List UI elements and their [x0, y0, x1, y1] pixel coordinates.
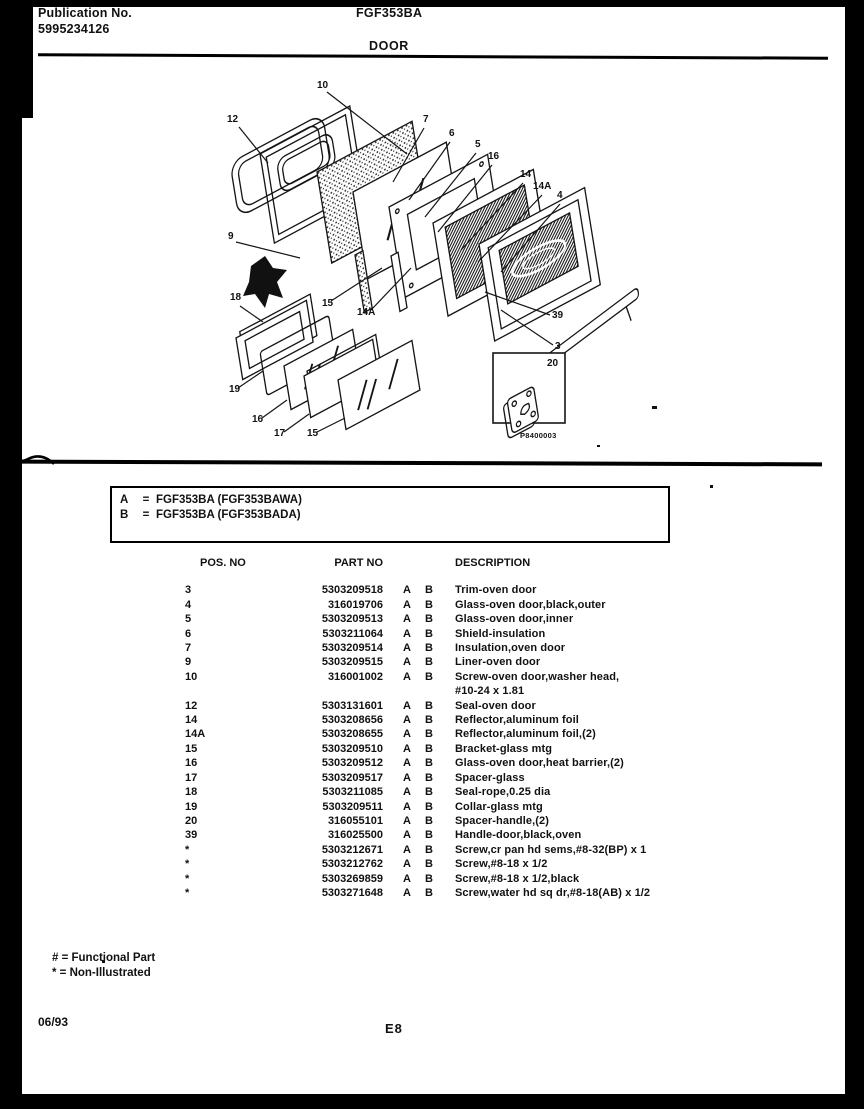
pos-no: 17 [185, 771, 263, 785]
equals-sign: = [136, 493, 156, 508]
description: Trim-oven door [455, 583, 685, 597]
callout-leader-line [262, 400, 287, 418]
scan-edge-right [845, 0, 864, 1109]
footnote-non-illustrated: * = Non-Illustrated [52, 966, 155, 981]
callout-leader-line [236, 242, 300, 258]
flag-a: A [403, 886, 425, 900]
part-no: 5303209510 [263, 742, 383, 756]
callout-label: 10 [317, 80, 329, 91]
publication-block: Publication No. 5995234126 [38, 5, 132, 37]
flag-a: A [403, 756, 425, 770]
model-flags: AB [383, 627, 455, 641]
model-flags: AB [383, 785, 455, 799]
table-row: 15 5303209510 AB Bracket-glass mtg [185, 742, 685, 756]
table-row: * 5303212671 AB Screw,cr pan hd sems,#8-… [185, 843, 685, 857]
model-flags: AB [383, 655, 455, 669]
description: Glass-oven door,inner [455, 612, 685, 626]
description: Handle-door,black,oven [455, 828, 685, 842]
description-line1: Shield-insulation [455, 627, 685, 641]
callout-label: 17 [274, 428, 286, 439]
callout-label: 15 [322, 298, 334, 309]
callout-leader-line [284, 414, 309, 432]
callout-label: 4 [557, 190, 563, 201]
scan-edge-left-nub [0, 0, 33, 118]
footer-page-code: E8 [385, 1021, 403, 1036]
description: Reflector,aluminum foil,(2) [455, 727, 685, 741]
pos-no: 18 [185, 785, 263, 799]
table-row: 14 5303208656 AB Reflector,aluminum foil [185, 713, 685, 727]
table-row: 39 316025500 AB Handle-door,black,oven [185, 828, 685, 842]
model-flags: AB [383, 857, 455, 871]
model-flags: AB [383, 843, 455, 857]
publication-label: Publication No. [38, 5, 132, 21]
description-line1: Screw-oven door,washer head, [455, 670, 685, 684]
description-line1: Bracket-glass mtg [455, 742, 685, 756]
description: Insulation,oven door [455, 641, 685, 655]
callout-label: 5 [475, 139, 481, 150]
pos-no: 14A [185, 727, 263, 741]
pos-no: 20 [185, 814, 263, 828]
model-flags: AB [383, 583, 455, 597]
flag-a: A [403, 641, 425, 655]
header-spacer [383, 556, 455, 570]
flag-a: A [403, 670, 425, 684]
pos-no: * [185, 843, 263, 857]
model-key-row: A=FGF353BA (FGF353BAWA) [120, 493, 668, 508]
pos-no: 6 [185, 627, 263, 641]
callout-label: 3 [555, 341, 561, 352]
flag-a: A [403, 583, 425, 597]
model-flags: AB [383, 612, 455, 626]
scan-speck [710, 485, 713, 488]
part-no: 5303209514 [263, 641, 383, 655]
description-line1: Reflector,aluminum foil [455, 713, 685, 727]
flag-b: B [425, 583, 447, 597]
flag-b: B [425, 627, 447, 641]
exploded-diagram: P8400003 1012765161414A49181514A19161715… [55, 70, 825, 465]
flag-b: B [425, 756, 447, 770]
description-line1: Reflector,aluminum foil,(2) [455, 727, 685, 741]
table-row: 16 5303209512 AB Glass-oven door,heat ba… [185, 756, 685, 770]
header-part-no: PART NO [263, 556, 383, 570]
callout-leader-line [331, 268, 382, 301]
flag-b: B [425, 872, 447, 886]
description: Spacer-glass [455, 771, 685, 785]
table-row: 7 5303209514 AB Insulation,oven door [185, 641, 685, 655]
part-no: 5303211085 [263, 785, 383, 799]
description: Bracket-glass mtg [455, 742, 685, 756]
part-no: 5303209517 [263, 771, 383, 785]
description-line1: Handle-door,black,oven [455, 828, 685, 842]
part-no: 5303209512 [263, 756, 383, 770]
flag-a: A [403, 655, 425, 669]
flag-a: A [403, 843, 425, 857]
parts-table: POS. NO PART NO DESCRIPTION 3 5303209518… [185, 556, 685, 900]
document-page: Publication No. 5995234126 FGF353BA DOOR [0, 0, 864, 1109]
flag-b: B [425, 598, 447, 612]
description-line1: Spacer-glass [455, 771, 685, 785]
parts-rows: 3 5303209518 AB Trim-oven door 4 3160197… [185, 583, 685, 900]
part-no: 5303212762 [263, 857, 383, 871]
flag-a: A [403, 699, 425, 713]
callout-leader-line [240, 306, 263, 322]
pos-no: 39 [185, 828, 263, 842]
part-no: 316019706 [263, 598, 383, 612]
model-number: FGF353BA [356, 6, 422, 20]
description-line1: Glass-oven door,black,outer [455, 598, 685, 612]
callout-label: 19 [229, 384, 241, 395]
flag-b: B [425, 771, 447, 785]
description-line1: Collar-glass mtg [455, 800, 685, 814]
table-row: 5 5303209513 AB Glass-oven door,inner [185, 612, 685, 626]
flag-a: A [403, 713, 425, 727]
part-no: 5303211064 [263, 627, 383, 641]
pos-no: 5 [185, 612, 263, 626]
flag-b: B [425, 727, 447, 741]
table-row: * 5303212762 AB Screw,#8-18 x 1/2 [185, 857, 685, 871]
description-line1: Glass-oven door,inner [455, 612, 685, 626]
description-line1: Insulation,oven door [455, 641, 685, 655]
pos-no: 12 [185, 699, 263, 713]
table-row: 18 5303211085 AB Seal-rope,0.25 dia [185, 785, 685, 799]
callout-label: 6 [449, 128, 455, 139]
flag-a: A [403, 742, 425, 756]
model-flags: AB [383, 670, 455, 699]
table-row: * 5303271648 AB Screw,water hd sq dr,#8-… [185, 886, 685, 900]
part-no: 5303269859 [263, 872, 383, 886]
header-rule [38, 53, 828, 59]
model-flags: AB [383, 727, 455, 741]
model-flags: AB [383, 872, 455, 886]
flag-b: B [425, 612, 447, 626]
flag-b: B [425, 814, 447, 828]
description: Screw,#8-18 x 1/2,black [455, 872, 685, 886]
description-line1: Screw,#8-18 x 1/2 [455, 857, 685, 871]
parts-table-header: POS. NO PART NO DESCRIPTION [185, 556, 685, 570]
pos-no: * [185, 872, 263, 886]
pos-no: 10 [185, 670, 263, 699]
part-no: 5303209511 [263, 800, 383, 814]
flag-b: B [425, 713, 447, 727]
header-pos-no: POS. NO [185, 556, 263, 570]
flag-b: B [425, 742, 447, 756]
flag-b: B [425, 828, 447, 842]
pos-no: * [185, 886, 263, 900]
pos-no: 16 [185, 756, 263, 770]
part-no: 5303271648 [263, 886, 383, 900]
publication-number: 5995234126 [38, 21, 132, 37]
section-title: DOOR [369, 39, 409, 53]
callout-label: 12 [227, 114, 239, 125]
pos-no: 14 [185, 713, 263, 727]
part-no: 5303209515 [263, 655, 383, 669]
pos-no: * [185, 857, 263, 871]
flag-a: A [403, 727, 425, 741]
description-line1: Seal-oven door [455, 699, 685, 713]
description-line1: Trim-oven door [455, 583, 685, 597]
model-flags: AB [383, 756, 455, 770]
table-row: * 5303269859 AB Screw,#8-18 x 1/2,black [185, 872, 685, 886]
callout-label: 16 [488, 151, 500, 162]
scan-edge-bottom [0, 1094, 864, 1109]
part-no: 316025500 [263, 828, 383, 842]
flag-b: B [425, 800, 447, 814]
scan-squiggle [0, 442, 60, 470]
pos-no: 9 [185, 655, 263, 669]
flag-b: B [425, 670, 447, 684]
callout-leader-line [317, 418, 345, 432]
table-row: 12 5303131601 AB Seal-oven door [185, 699, 685, 713]
table-row: 9 5303209515 AB Liner-oven door [185, 655, 685, 669]
part-no: 316055101 [263, 814, 383, 828]
table-row: 10 316001002 AB Screw-oven door,washer h… [185, 670, 685, 699]
table-row: 6 5303211064 AB Shield-insulation [185, 627, 685, 641]
description: Seal-rope,0.25 dia [455, 785, 685, 799]
model-key-letter: A [120, 493, 136, 508]
description: Glass-oven door,heat barrier,(2) [455, 756, 685, 770]
door-seal [230, 114, 331, 218]
pos-no: 15 [185, 742, 263, 756]
description-line1: Screw,#8-18 x 1/2,black [455, 872, 685, 886]
part-no: 5303209518 [263, 583, 383, 597]
footnotes: # = Functional Part * = Non-Illustrated [52, 951, 155, 981]
description-line1: Glass-oven door,heat barrier,(2) [455, 756, 685, 770]
part-no: 5303208655 [263, 727, 383, 741]
flag-b: B [425, 857, 447, 871]
pos-no: 4 [185, 598, 263, 612]
equals-sign: = [136, 508, 156, 523]
model-flags: AB [383, 771, 455, 785]
part-no: 5303212671 [263, 843, 383, 857]
callout-label: 7 [423, 114, 429, 125]
flag-b: B [425, 843, 447, 857]
description: Screw,water hd sq dr,#8-18(AB) x 1/2 [455, 886, 685, 900]
callout-label: 16 [252, 414, 264, 425]
flag-a: A [403, 814, 425, 828]
table-row: 20 316055101 AB Spacer-handle,(2) [185, 814, 685, 828]
table-row: 14A 5303208655 AB Reflector,aluminum foi… [185, 727, 685, 741]
callout-label: 9 [228, 231, 234, 242]
pos-no: 7 [185, 641, 263, 655]
footnote-functional: # = Functional Part [52, 951, 155, 966]
model-key-letter: B [120, 508, 136, 523]
model-flags: AB [383, 814, 455, 828]
description: Reflector,aluminum foil [455, 713, 685, 727]
part-no: 5303131601 [263, 699, 383, 713]
callout-label: 20 [547, 358, 559, 369]
description: Seal-oven door [455, 699, 685, 713]
model-flags: AB [383, 713, 455, 727]
description-line1: Spacer-handle,(2) [455, 814, 685, 828]
model-flags: AB [383, 800, 455, 814]
description-line1: Liner-oven door [455, 655, 685, 669]
footer-date: 06/93 [38, 1015, 68, 1029]
part-no: 5303209513 [263, 612, 383, 626]
model-flags: AB [383, 598, 455, 612]
callout-label: 15 [307, 428, 319, 439]
description-line1: Screw,water hd sq dr,#8-18(AB) x 1/2 [455, 886, 685, 900]
pos-no: 3 [185, 583, 263, 597]
model-flags: AB [383, 828, 455, 842]
flag-a: A [403, 627, 425, 641]
table-row: 17 5303209517 AB Spacer-glass [185, 771, 685, 785]
model-flags: AB [383, 886, 455, 900]
description: Collar-glass mtg [455, 800, 685, 814]
description: Screw,cr pan hd sems,#8-32(BP) x 1 [455, 843, 685, 857]
part-no: 5303208656 [263, 713, 383, 727]
table-row: 4 316019706 AB Glass-oven door,black,out… [185, 598, 685, 612]
part-no: 316001002 [263, 670, 383, 699]
figure-code: P8400003 [520, 431, 557, 440]
callout-label: 14A [357, 307, 375, 318]
description: Spacer-handle,(2) [455, 814, 685, 828]
description: Screw,#8-18 x 1/2 [455, 857, 685, 871]
header-description: DESCRIPTION [455, 556, 685, 570]
flag-b: B [425, 641, 447, 655]
model-key-box: A=FGF353BA (FGF353BAWA) B=FGF353BA (FGF3… [110, 486, 670, 543]
description-line1: Seal-rope,0.25 dia [455, 785, 685, 799]
flag-a: A [403, 771, 425, 785]
description-line2: #10-24 x 1.81 [455, 684, 685, 698]
description: Liner-oven door [455, 655, 685, 669]
flag-a: A [403, 828, 425, 842]
model-key-row: B=FGF353BA (FGF353BADA) [120, 508, 668, 523]
insulation-scrap [243, 256, 287, 308]
model-key-value: FGF353BA (FGF353BADA) [156, 509, 301, 521]
model-flags: AB [383, 742, 455, 756]
pos-no: 19 [185, 800, 263, 814]
table-row: 19 5303209511 AB Collar-glass mtg [185, 800, 685, 814]
flag-a: A [403, 785, 425, 799]
callout-label: 18 [230, 292, 242, 303]
flag-a: A [403, 872, 425, 886]
flag-b: B [425, 699, 447, 713]
model-flags: AB [383, 699, 455, 713]
callout-label: 39 [552, 310, 564, 321]
flag-b: B [425, 886, 447, 900]
flag-a: A [403, 857, 425, 871]
model-key-value: FGF353BA (FGF353BAWA) [156, 494, 302, 506]
callout-label: 14A [533, 181, 551, 192]
table-row: 3 5303209518 AB Trim-oven door [185, 583, 685, 597]
callout-label: 14 [520, 169, 532, 180]
flag-a: A [403, 612, 425, 626]
flag-b: B [425, 785, 447, 799]
description: Screw-oven door,washer head, #10-24 x 1.… [455, 670, 685, 699]
description-line1: Screw,cr pan hd sems,#8-32(BP) x 1 [455, 843, 685, 857]
model-flags: AB [383, 641, 455, 655]
description: Shield-insulation [455, 627, 685, 641]
description: Glass-oven door,black,outer [455, 598, 685, 612]
scan-edge-left [0, 0, 22, 1109]
flag-b: B [425, 655, 447, 669]
flag-a: A [403, 598, 425, 612]
flag-a: A [403, 800, 425, 814]
